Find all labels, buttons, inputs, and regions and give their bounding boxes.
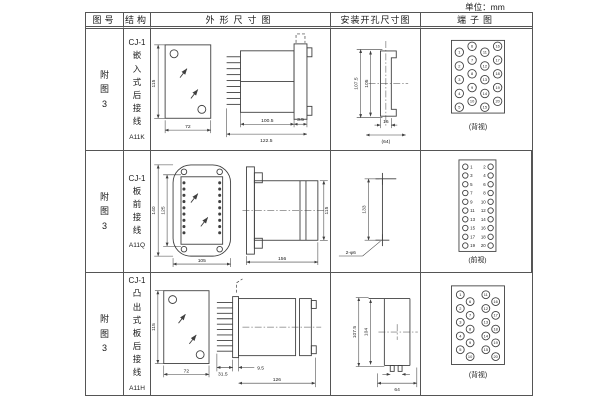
install-a11h-svg: 107.5 104 64	[331, 273, 420, 395]
terminal-circle	[488, 190, 493, 195]
dim-inner-height: 104	[364, 328, 370, 336]
spec-table: 图号 结构 外形尺寸图 安装开孔尺寸图 端子图 附图3 CJ-1 嵌入式后接线 …	[85, 12, 533, 396]
dim-total-length: 122.5	[260, 138, 273, 144]
terminal-grid-rear: 1234567891011121314151617181920	[456, 291, 499, 361]
terminal-circle	[488, 234, 493, 239]
terminal-number: 19	[493, 340, 497, 345]
outline-a11q-svg: 140 125 105 115	[151, 151, 330, 272]
view-label: (前视)	[468, 255, 486, 264]
dim-front-height: 115	[151, 323, 157, 331]
terminal-circle	[488, 208, 493, 213]
terminal-number: 4	[483, 173, 486, 178]
terminal-number: 1	[458, 50, 460, 55]
structure-row1: CJ-1 嵌入式后接线 A11K	[124, 29, 151, 151]
terminal-a11h-svg: 1234567891011121314151617181920 (背视)	[421, 273, 532, 395]
terminal-number: 7	[470, 191, 473, 196]
dim-body-length: 156	[278, 256, 286, 262]
hole-callout-label: 2-φ6	[346, 250, 357, 256]
terminal-number: 3	[458, 77, 460, 82]
dim-front-width: 105	[198, 258, 206, 264]
terminal-number: 6	[471, 44, 473, 49]
install-a11q-svg: 133 2-φ6	[331, 151, 420, 272]
terminal-number: 13	[470, 217, 475, 222]
header-structure: 结构	[124, 13, 151, 29]
outline-drawing-a11h: 115 72	[151, 273, 331, 395]
terminal-number: 17	[493, 313, 497, 318]
terminal-number: 8	[469, 326, 471, 331]
terminal-circle	[463, 208, 468, 213]
dim-hole-span: 133	[362, 205, 368, 213]
terminal-number: 20	[481, 243, 486, 248]
terminal-circle	[488, 199, 493, 204]
structure-row3: CJ-1 凸出式板后接线 A11H	[124, 273, 151, 395]
structure-name: 板前接线	[132, 185, 143, 238]
structure-prefix: CJ-1	[129, 276, 146, 285]
fig-no-row3: 附图3	[86, 273, 124, 395]
terminal-number: 19	[495, 85, 499, 90]
spec-sheet-page: 单位：mm 图号 结构 外形尺寸图 安装开孔尺寸图 端子图 附图3 CJ-1 嵌…	[0, 0, 600, 400]
dim-body-length: 100.5	[261, 118, 274, 124]
dim-step-length: 9.5	[257, 365, 264, 371]
terminal-circle	[488, 243, 493, 248]
terminal-number: 9	[471, 85, 473, 90]
terminal-number: 13	[483, 77, 487, 82]
terminal-number: 19	[470, 243, 475, 248]
structure-name: 嵌入式后接线	[132, 49, 143, 128]
terminal-number: 9	[470, 199, 473, 204]
dim-front-width: 72	[184, 368, 190, 374]
view-label: (背视)	[469, 370, 487, 379]
header-fig-no: 图号	[86, 13, 124, 29]
terminal-number: 17	[495, 57, 499, 62]
terminal-circle	[488, 217, 493, 222]
terminal-number: 8	[483, 191, 486, 196]
terminal-number: 14	[481, 217, 486, 222]
terminal-number: 5	[470, 182, 473, 187]
outline-a11k-svg: 115 72	[151, 29, 330, 150]
terminal-number: 9	[469, 340, 471, 345]
pin-comb	[227, 57, 241, 105]
terminal-drawing-a11h: 1234567891011121314151617181920 (背视)	[421, 273, 532, 395]
structure-name: 凸出式板后接线	[132, 287, 143, 379]
structure-row2: CJ-1 板前接线 A11Q	[124, 151, 151, 273]
terminal-number: 16	[495, 44, 499, 49]
terminal-number: 11	[484, 292, 488, 297]
terminal-number: 7	[469, 313, 471, 318]
terminal-number: 6	[483, 182, 486, 187]
install-drawing-a11q: 133 2-φ6	[331, 151, 421, 273]
fig-no-row2: 附图3	[86, 151, 124, 273]
terminal-circle	[463, 164, 468, 169]
outline-a11h-svg: 115 72	[151, 273, 330, 395]
terminal-circle	[463, 182, 468, 187]
dim-side-height: 115	[324, 206, 330, 214]
terminal-number: 17	[470, 234, 475, 239]
fig-no-text: 附图3	[99, 68, 110, 111]
pin-comb	[217, 303, 233, 352]
terminal-number: 7	[471, 57, 473, 62]
terminal-circle	[463, 173, 468, 178]
header-terminal-diagram: 端子图	[421, 13, 532, 29]
terminal-circle	[463, 217, 468, 222]
dim-pin-length: 31.5	[218, 371, 228, 377]
dim-front-height: 115	[151, 79, 157, 87]
install-drawing-a11h: 107.5 104 64	[331, 273, 421, 395]
terminal-circle	[463, 225, 468, 230]
terminal-number: 2	[459, 306, 461, 311]
structure-prefix: CJ-1	[129, 38, 146, 47]
view-label: (背视)	[469, 122, 487, 131]
dim-slot-width: 16	[383, 119, 389, 125]
terminal-circle	[463, 234, 468, 239]
terminal-number: 13	[484, 320, 488, 325]
terminal-number: 11	[470, 208, 475, 213]
dim-outer-height: 107.5	[354, 77, 360, 90]
fig-no-text: 附图3	[99, 312, 110, 355]
terminal-number: 11	[483, 50, 487, 55]
dim-inner-height: 105	[364, 79, 370, 87]
install-a11k-svg: 107.5 105 16 (64)	[331, 29, 420, 150]
header-install-dims: 安装开孔尺寸图	[331, 13, 421, 29]
terminal-number: 18	[481, 234, 486, 239]
structure-code: A11Q	[129, 242, 145, 249]
outline-drawing-a11k: 115 72	[151, 29, 331, 151]
terminal-number: 8	[471, 71, 473, 76]
fig-no-text: 附图3	[99, 190, 110, 233]
terminal-number: 10	[481, 199, 486, 204]
terminal-number: 15	[470, 226, 475, 231]
terminal-circle	[463, 199, 468, 204]
dim-body-length: 126	[273, 377, 281, 383]
terminal-circle	[488, 182, 493, 187]
terminal-a11k-svg: 1234567891011121314151617181920 (背视)	[421, 29, 532, 150]
terminal-number: 18	[495, 71, 499, 76]
terminal-grid-front: 1234567891011121314151617181920	[463, 164, 494, 248]
terminal-drawing-a11k: 1234567891011121314151617181920 (背视)	[421, 29, 532, 151]
terminal-number: 12	[484, 306, 488, 311]
terminal-number: 1	[459, 292, 461, 297]
terminal-number: 18	[493, 326, 497, 331]
terminal-circle	[488, 225, 493, 230]
terminal-circle	[463, 243, 468, 248]
dim-span-width: (64)	[381, 139, 390, 145]
terminal-number: 12	[481, 208, 486, 213]
terminal-grid-rear: 1234567891011121314151617181920	[455, 42, 502, 111]
terminal-number: 2	[458, 63, 460, 68]
header-outline-dims: 外形尺寸图	[151, 13, 331, 29]
dim-flange-thickness: 3.5	[297, 117, 304, 123]
fig-no-row1: 附图3	[86, 29, 124, 151]
structure-code: A11H	[129, 385, 145, 392]
outline-drawing-a11q: 140 125 105 115	[151, 151, 331, 273]
structure-code: A11K	[129, 134, 144, 141]
terminal-circle	[488, 164, 493, 169]
dim-inner-height: 125	[161, 206, 167, 214]
terminal-number: 1	[470, 164, 473, 169]
terminal-number: 3	[470, 173, 473, 178]
terminal-number: 16	[493, 299, 497, 304]
terminal-number: 2	[483, 164, 486, 169]
terminal-number: 6	[469, 299, 471, 304]
terminal-circle	[488, 173, 493, 178]
terminal-a11q-svg: 1234567891011121314151617181920 (前视)	[421, 151, 531, 272]
terminal-circle	[463, 190, 468, 195]
dim-outer-height: 140	[151, 206, 157, 214]
terminal-drawing-a11q: 1234567891011121314151617181920 (前视)	[421, 151, 532, 273]
install-drawing-a11k: 107.5 105 16 (64)	[331, 29, 421, 151]
terminal-number: 16	[481, 226, 486, 231]
dim-outer-height: 107.5	[352, 326, 358, 339]
dim-span-width: 64	[394, 387, 400, 393]
structure-prefix: CJ-1	[129, 174, 146, 183]
dim-front-width: 72	[185, 124, 191, 130]
terminal-number: 3	[459, 320, 461, 325]
terminal-number: 12	[483, 63, 487, 68]
